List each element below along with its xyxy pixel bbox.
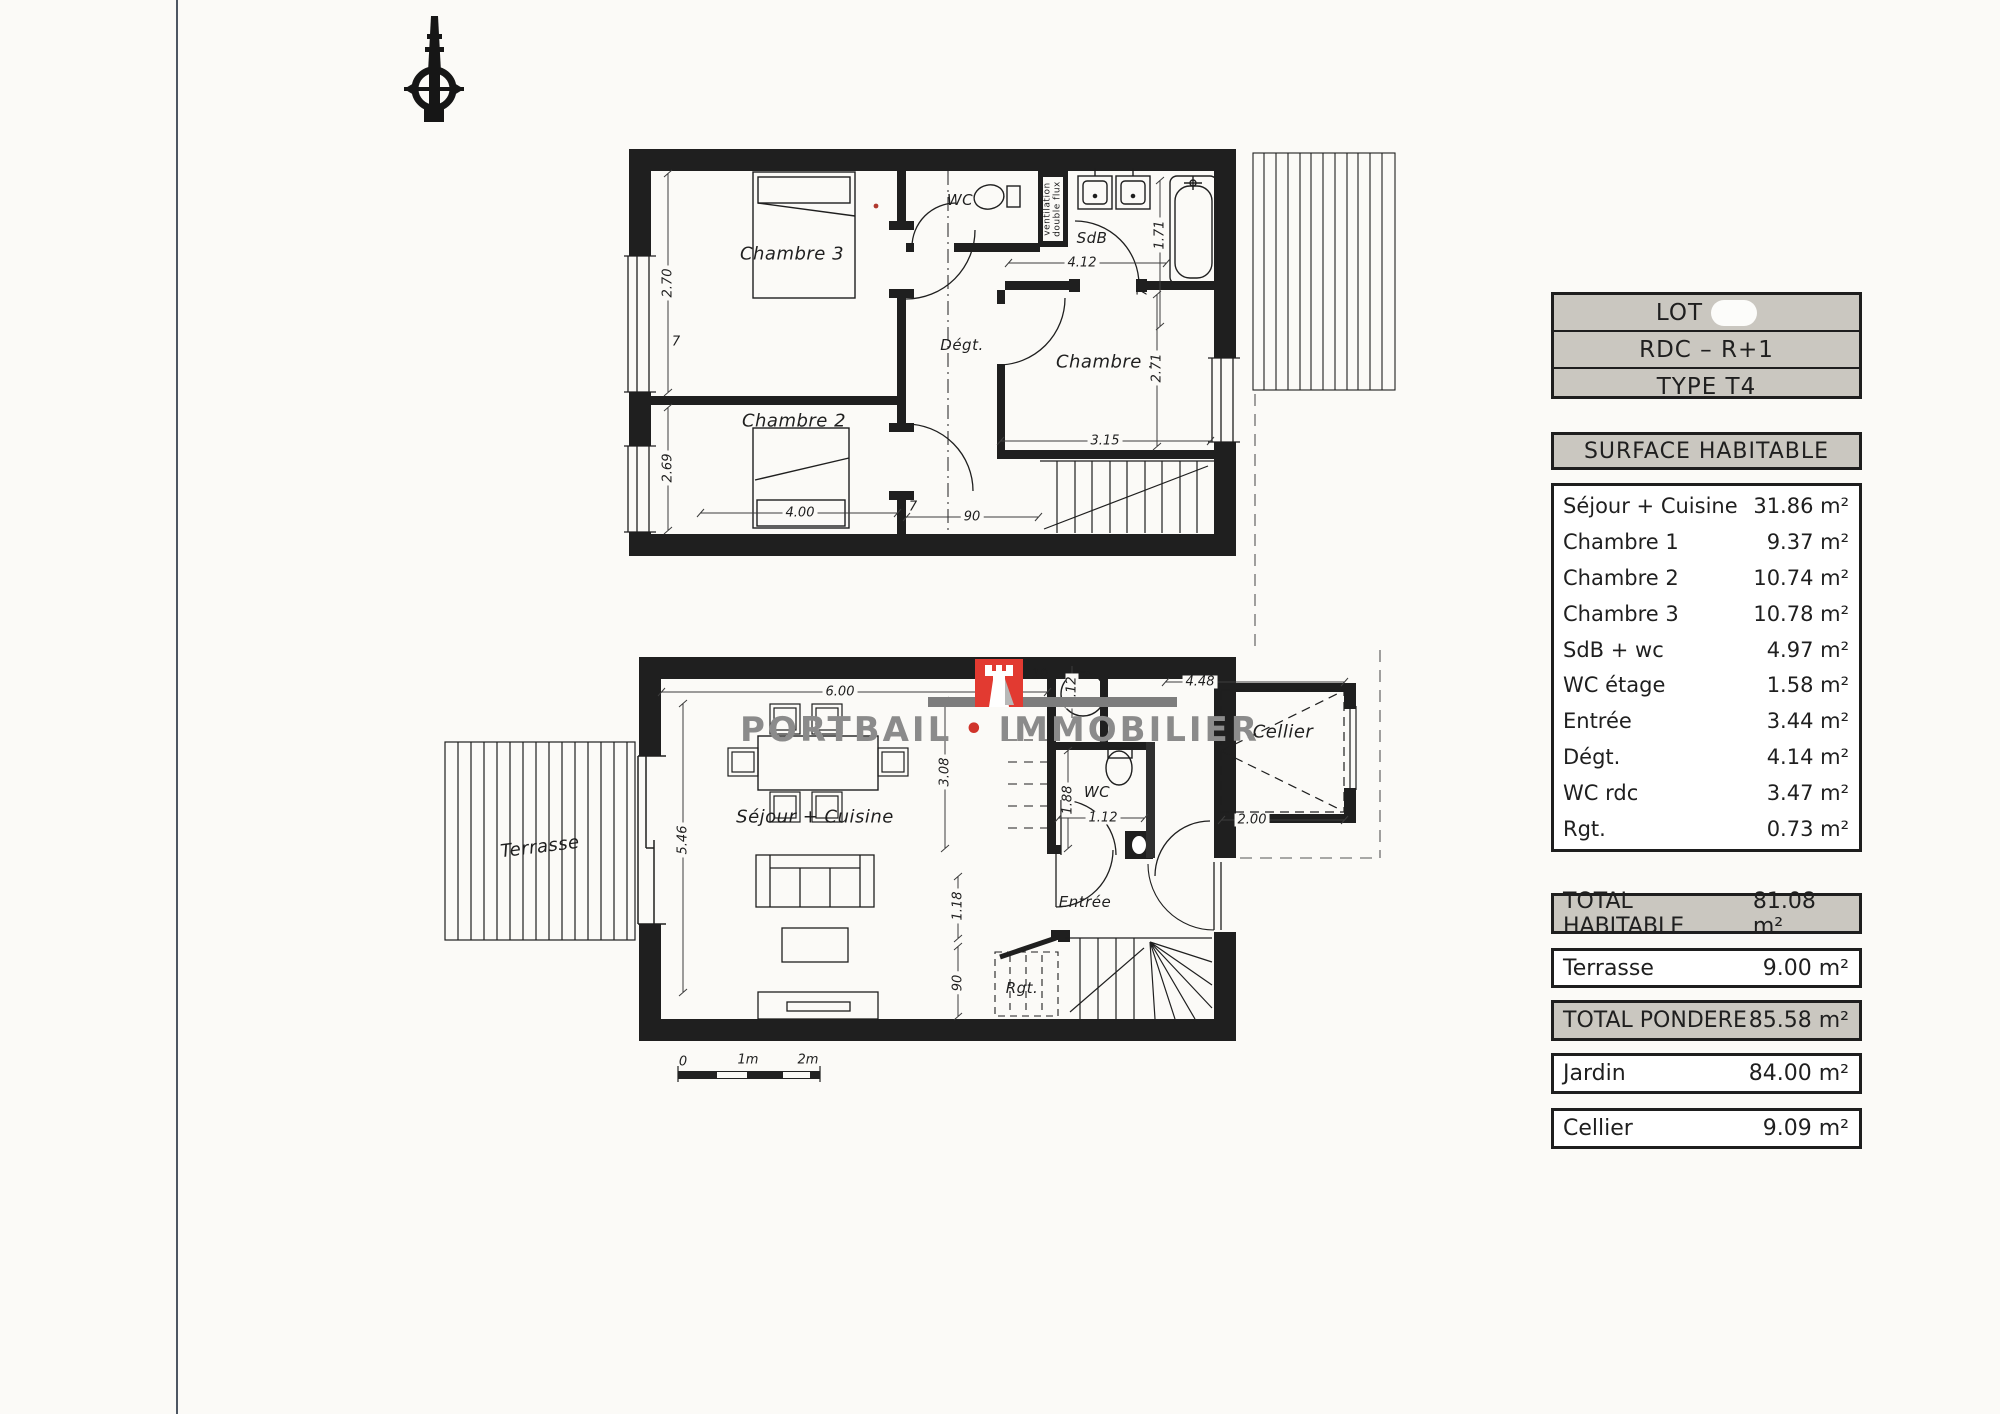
- toilet-icon: [972, 182, 1020, 212]
- jardin-value: 84.00 m²: [1749, 1061, 1849, 1086]
- cellier-label: Cellier: [1563, 1116, 1633, 1141]
- storage-closet: [995, 938, 1058, 1016]
- cellier-box: Cellier 9.09 m²: [1551, 1108, 1862, 1149]
- cellier-value: 9.09 m²: [1763, 1116, 1849, 1141]
- scale-bar: [678, 1066, 820, 1082]
- room-label-chambre2: Chambre 2: [742, 411, 846, 432]
- dim-112: 1.12: [1086, 812, 1121, 825]
- dim-188: 1.88: [1062, 783, 1075, 818]
- total-habitable-box: TOTAL HABITABLE 81.08 m²: [1551, 893, 1862, 934]
- total-pondere-box: TOTAL PONDERE 85.58 m²: [1551, 1000, 1862, 1041]
- coffee-table-icon: [782, 928, 848, 962]
- jardin-box: Jardin 84.00 m²: [1551, 1053, 1862, 1094]
- ground-floor-plan: [445, 650, 1380, 1041]
- room-name: Rgt.: [1563, 817, 1606, 841]
- table-row: Dégt. 4.14 m²: [1554, 745, 1859, 769]
- toilet-icon: [1106, 748, 1132, 785]
- upper-floor-plan: [624, 149, 1395, 648]
- room-label-sejour: Séjour + Cuisine: [736, 807, 894, 828]
- dim-118: 1.18: [952, 889, 965, 924]
- room-area: 3.47 m²: [1767, 781, 1849, 805]
- room-label-degagement: Dégt.: [940, 336, 983, 354]
- dim-7c: 7: [1137, 285, 1150, 299]
- room-name: Entrée: [1563, 709, 1632, 733]
- surface-title: SURFACE HABITABLE: [1554, 435, 1859, 467]
- scale-0: 0: [679, 1055, 687, 1070]
- room-name: Chambre 2: [1563, 566, 1679, 590]
- logo-text-right: IMMOBILIER: [998, 710, 1260, 750]
- type-row: TYPE T4: [1554, 367, 1859, 404]
- dim-90-ground: 90: [952, 972, 965, 995]
- stairs-ground: [1065, 938, 1212, 1019]
- terrasse-label: Terrasse: [1563, 956, 1654, 981]
- surface-title-box: SURFACE HABITABLE: [1551, 432, 1862, 470]
- dim-269: 2.69: [662, 451, 675, 486]
- room-area: 31.86 m²: [1753, 494, 1849, 518]
- terrasse-box: Terrasse 9.00 m²: [1551, 948, 1862, 988]
- room-area: 9.37 m²: [1767, 530, 1849, 554]
- table-row: Chambre 1 9.37 m²: [1554, 530, 1859, 554]
- dim-315: 3.15: [1088, 435, 1123, 448]
- table-row: Chambre 2 10.74 m²: [1554, 566, 1859, 590]
- total-habitable-value: 81.08 m²: [1753, 889, 1849, 939]
- tv-stand-icon: [758, 992, 878, 1019]
- door-arc: [906, 424, 973, 491]
- table-row: WC étage 1.58 m²: [1554, 673, 1859, 697]
- lot-number-erased: [1711, 300, 1757, 326]
- dim-10: 10: [1029, 669, 1052, 682]
- dim-448: 4.48: [1183, 676, 1218, 689]
- dim-546: 5.46: [677, 823, 690, 858]
- logo-dot: •: [964, 715, 986, 745]
- lot-label: LOT: [1656, 300, 1703, 326]
- dim-308: 3.08: [939, 755, 952, 790]
- logo-text-left: PORTBAIL: [740, 710, 952, 750]
- room-name: SdB + wc: [1563, 638, 1664, 662]
- dim-171: 1.71: [1154, 218, 1167, 253]
- table-row: Séjour + Cuisine 31.86 m²: [1554, 494, 1859, 518]
- bed-icon: [753, 172, 855, 298]
- room-name: Chambre 1: [1563, 530, 1679, 554]
- door-arc: [1148, 864, 1214, 930]
- room-area: 4.97 m²: [1767, 638, 1849, 662]
- sofa-icon: [756, 855, 874, 907]
- levels-row: RDC – R+1: [1554, 330, 1859, 367]
- lot-row: LOT: [1554, 295, 1859, 330]
- table-row: Chambre 3 10.78 m²: [1554, 602, 1859, 626]
- floorplan-sheet: Chambre 3 Chambre 2 Chambre 1 Dégt. WC S…: [0, 0, 2000, 1414]
- lot-header-box: LOT RDC – R+1 TYPE T4: [1551, 292, 1862, 399]
- room-label-entree: Entrée: [1059, 893, 1112, 911]
- table-row: Rgt. 0.73 m²: [1554, 817, 1859, 841]
- room-label-sdb: SdB: [1077, 229, 1108, 247]
- balcony-hatch: [1253, 153, 1395, 390]
- logo-rook-icon: [975, 659, 1023, 707]
- room-label-cellier: Cellier: [1253, 722, 1314, 743]
- dim-7b: 7: [906, 501, 920, 514]
- washbasin-icon: [1116, 168, 1150, 209]
- washbasin-icon: [1078, 168, 1112, 209]
- dim-200: 2.00: [1235, 814, 1270, 827]
- room-name: Dégt.: [1563, 745, 1620, 769]
- room-label-wc-rdc: WC: [1084, 783, 1110, 801]
- bathtub-icon: [1170, 176, 1217, 284]
- terrasse-value: 9.00 m²: [1763, 956, 1849, 981]
- ventilation-note: ventilation double flux: [1043, 176, 1064, 242]
- room-label-rgt: Rgt.: [1006, 979, 1039, 997]
- door-arc: [912, 203, 956, 247]
- door-arc: [998, 298, 1065, 365]
- room-area: 10.78 m²: [1753, 602, 1849, 626]
- total-habitable-label: TOTAL HABITABLE: [1563, 889, 1753, 939]
- dim-7a: 7: [669, 336, 683, 349]
- rooms-table: Séjour + Cuisine 31.86 m² Chambre 1 9.37…: [1551, 483, 1862, 852]
- dim-400: 4.00: [783, 507, 818, 520]
- jardin-label: Jardin: [1563, 1061, 1626, 1086]
- cellier-outline: [1221, 690, 1356, 812]
- table-row: SdB + wc 4.97 m²: [1554, 638, 1859, 662]
- room-area: 3.44 m²: [1767, 709, 1849, 733]
- table-row: Entrée 3.44 m²: [1554, 709, 1859, 733]
- room-name: WC étage: [1563, 673, 1665, 697]
- room-name: WC rdc: [1563, 781, 1638, 805]
- meter-icon: [1132, 836, 1146, 854]
- room-area: 10.74 m²: [1753, 566, 1849, 590]
- room-label-chambre1: Chambre 1: [1056, 352, 1160, 373]
- room-label-wc-etage: WC: [947, 191, 973, 209]
- table-row: WC rdc 3.47 m²: [1554, 781, 1859, 805]
- dim-90-upper: 90: [961, 511, 984, 524]
- dim-412: 4.12: [1065, 257, 1100, 270]
- room-name: Chambre 3: [1563, 602, 1679, 626]
- logo-wordmark: PORTBAIL • IMMOBILIER: [740, 710, 1260, 750]
- logo-bar: [928, 697, 1177, 707]
- dim-270: 2.70: [662, 266, 675, 301]
- scale-1m: 1m: [738, 1053, 759, 1068]
- dim-600: 6.00: [823, 686, 858, 699]
- room-label-chambre3: Chambre 3: [740, 244, 844, 265]
- room-area: 1.58 m²: [1767, 673, 1849, 697]
- stairs-upper: [1040, 461, 1214, 533]
- room-area: 0.73 m²: [1767, 817, 1849, 841]
- scale-2m: 2m: [798, 1053, 819, 1068]
- scan-speck: [874, 204, 879, 209]
- total-pondere-label: TOTAL PONDERE: [1563, 1008, 1747, 1033]
- room-name: Séjour + Cuisine: [1563, 494, 1738, 518]
- dim-271: 2.71: [1151, 351, 1164, 386]
- door-arc: [1155, 821, 1210, 876]
- room-area: 4.14 m²: [1767, 745, 1849, 769]
- door-arc: [906, 230, 975, 299]
- north-compass-icon: [404, 16, 464, 122]
- total-pondere-value: 85.58 m²: [1749, 1008, 1849, 1033]
